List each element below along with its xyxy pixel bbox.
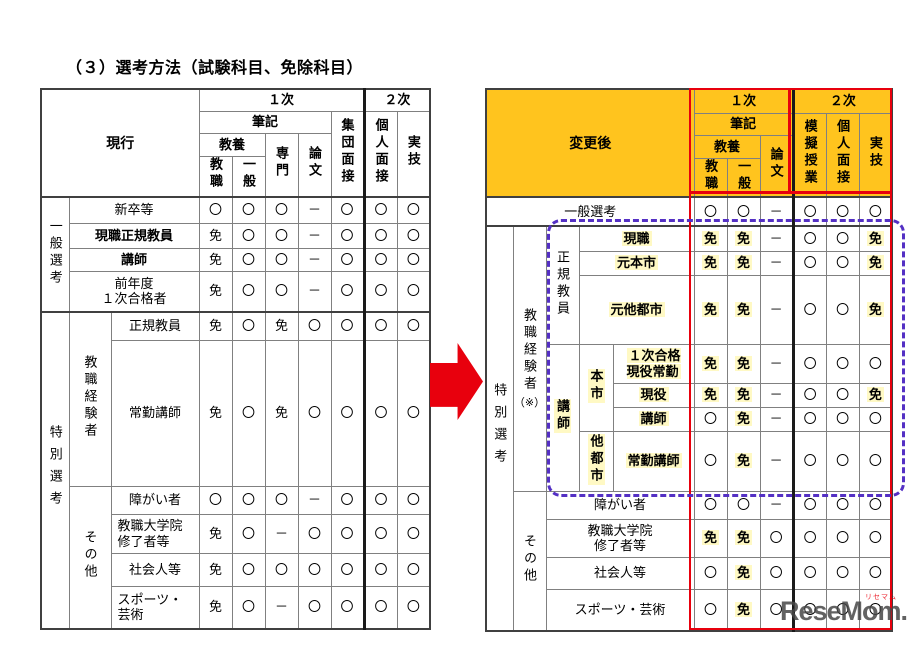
row-label: 現役 bbox=[613, 383, 694, 407]
essay-header: 論文 bbox=[760, 135, 793, 197]
cell: － bbox=[760, 251, 793, 275]
cell: － bbox=[298, 248, 331, 271]
cell: － bbox=[298, 486, 331, 514]
cell: 〇 bbox=[793, 344, 826, 383]
cell: 〇 bbox=[793, 383, 826, 407]
cell: 免 bbox=[694, 226, 727, 251]
current-table: 現行 １次 ２次 筆記 集団面接 個人面接 実技 教養 専門 論文 教職 一般 … bbox=[40, 88, 431, 630]
liberal-header: 教養 bbox=[199, 133, 265, 156]
mock-lesson-header: 模擬授業 bbox=[793, 113, 826, 197]
cell: － bbox=[265, 514, 298, 553]
table-row: 教職大学院 修了者等 免 免 〇 〇 〇 〇 bbox=[486, 519, 892, 557]
cell: 〇 bbox=[364, 553, 397, 586]
cell: 〇 bbox=[793, 491, 826, 519]
cell: － bbox=[760, 197, 793, 226]
cell: 〇 bbox=[232, 514, 265, 553]
row-label-general-selection: 一般選考 bbox=[486, 197, 694, 226]
table-row: 一般選考 〇 〇 － 〇 〇 〇 bbox=[486, 197, 892, 226]
cell: 免 bbox=[727, 383, 760, 407]
cell: 免 bbox=[727, 557, 760, 589]
row-label: スポーツ・ 芸術 bbox=[111, 586, 199, 629]
cell: 〇 bbox=[826, 519, 859, 557]
group-regular-teacher: 正規教員 bbox=[546, 226, 579, 344]
table-row: 前年度 １次合格者 免 〇 〇 － 〇 〇 〇 bbox=[41, 271, 430, 312]
cell: 〇 bbox=[265, 486, 298, 514]
revised-table: 変更後 １次 ２次 筆記 模擬授業 個人面接 実技 教養 論文 教職 一般 一般… bbox=[485, 88, 893, 632]
cell: 〇 bbox=[859, 431, 892, 491]
teaching-header: 教職 bbox=[199, 156, 232, 197]
group-lecturer: 講師 bbox=[546, 344, 579, 491]
cell: 〇 bbox=[265, 197, 298, 223]
cell: 〇 bbox=[826, 344, 859, 383]
cell: 〇 bbox=[364, 586, 397, 629]
row-label: 常勤講師 bbox=[111, 340, 199, 486]
cell: 免 bbox=[727, 251, 760, 275]
cell: 〇 bbox=[397, 553, 430, 586]
cell: 〇 bbox=[331, 486, 364, 514]
group-other-city: 他都市 bbox=[579, 431, 613, 491]
cell: － bbox=[760, 344, 793, 383]
cell: 〇 bbox=[232, 312, 265, 340]
cell: 〇 bbox=[859, 197, 892, 226]
cell: 〇 bbox=[232, 248, 265, 271]
cell: 免 bbox=[859, 251, 892, 275]
cell: 〇 bbox=[397, 312, 430, 340]
cell: 〇 bbox=[397, 248, 430, 271]
cell: 〇 bbox=[760, 519, 793, 557]
table-row: 一般選考 新卒等 〇 〇 〇 － 〇 〇 〇 bbox=[41, 197, 430, 223]
cell: 〇 bbox=[331, 197, 364, 223]
row-label: 社会人等 bbox=[111, 553, 199, 586]
cell: 免 bbox=[859, 275, 892, 344]
row-label: 新卒等 bbox=[69, 197, 199, 223]
change-arrow bbox=[430, 343, 483, 420]
cell: － bbox=[760, 407, 793, 431]
table-row: 講師 免 〇 〇 － 〇 〇 〇 bbox=[41, 248, 430, 271]
cell: 免 bbox=[727, 226, 760, 251]
note-mark: （※） bbox=[514, 397, 545, 410]
cell: 〇 bbox=[826, 226, 859, 251]
general-header: 一般 bbox=[232, 156, 265, 197]
cell: 〇 bbox=[793, 557, 826, 589]
cell: 〇 bbox=[364, 223, 397, 248]
cell: 免 bbox=[727, 275, 760, 344]
cell: 〇 bbox=[694, 491, 727, 519]
general-header: 一般 bbox=[727, 158, 760, 197]
row-label: 元他都市 bbox=[579, 275, 694, 344]
cell: 〇 bbox=[694, 431, 727, 491]
cell: 〇 bbox=[694, 589, 727, 631]
cell: 〇 bbox=[232, 340, 265, 486]
cell: 〇 bbox=[826, 275, 859, 344]
individual-interview-header: 個人面接 bbox=[826, 113, 859, 197]
cell: 〇 bbox=[331, 553, 364, 586]
group-special-selection: 特別選考 bbox=[41, 312, 69, 629]
cell: 〇 bbox=[265, 271, 298, 312]
cell: － bbox=[760, 383, 793, 407]
specialty-header: 専門 bbox=[265, 133, 298, 197]
cell: 免 bbox=[694, 344, 727, 383]
cell: 〇 bbox=[298, 553, 331, 586]
group-general-selection: 一般選考 bbox=[41, 197, 69, 312]
cell: 〇 bbox=[364, 248, 397, 271]
cell: 〇 bbox=[397, 197, 430, 223]
written-header: 筆記 bbox=[694, 113, 793, 135]
watermark-logo: リセマム ReseMom. bbox=[780, 596, 907, 627]
round2-header: ２次 bbox=[364, 89, 430, 111]
row-label: 現職正規教員 bbox=[69, 223, 199, 248]
page-title: （３）選考方法（試験科目、免除科目） bbox=[66, 54, 363, 78]
cell: 〇 bbox=[331, 514, 364, 553]
cell: 〇 bbox=[727, 197, 760, 226]
cell: 免 bbox=[199, 586, 232, 629]
cell: 〇 bbox=[331, 312, 364, 340]
row-label: 現職 bbox=[579, 226, 694, 251]
cell: 〇 bbox=[793, 226, 826, 251]
cell: 〇 bbox=[199, 486, 232, 514]
cell: 〇 bbox=[364, 271, 397, 312]
cell: 〇 bbox=[364, 486, 397, 514]
cell: 〇 bbox=[298, 514, 331, 553]
cell: 〇 bbox=[397, 486, 430, 514]
written-header: 筆記 bbox=[199, 111, 331, 133]
cell: 〇 bbox=[298, 586, 331, 629]
row-label: 講師 bbox=[69, 248, 199, 271]
cell: 〇 bbox=[694, 197, 727, 226]
revised-label: 変更後 bbox=[486, 89, 694, 197]
cell: 〇 bbox=[760, 557, 793, 589]
cell: 免 bbox=[727, 589, 760, 631]
table-row: 社会人等 〇 免 〇 〇 〇 〇 bbox=[486, 557, 892, 589]
table-row: 特別選考 教職経験者 （※） 正規教員 現職 免 免 － 〇 〇 免 bbox=[486, 226, 892, 251]
table-row: 講師 本市 １次合格 現役常勤 免 免 － 〇 〇 〇 bbox=[486, 344, 892, 383]
row-label: 障がい者 bbox=[111, 486, 199, 514]
cell: 免 bbox=[859, 383, 892, 407]
row-label: 講師 bbox=[613, 407, 694, 431]
cell: 〇 bbox=[397, 340, 430, 486]
cell: 免 bbox=[694, 251, 727, 275]
liberal-header: 教養 bbox=[694, 135, 760, 158]
cell: 〇 bbox=[298, 312, 331, 340]
cell: 〇 bbox=[232, 197, 265, 223]
row-label: 教職大学院 修了者等 bbox=[546, 519, 694, 557]
cell: 〇 bbox=[265, 553, 298, 586]
cell: － bbox=[760, 226, 793, 251]
group-teaching-experienced: 教職経験者 （※） bbox=[513, 226, 546, 491]
cell: 免 bbox=[727, 519, 760, 557]
cell: － bbox=[298, 223, 331, 248]
group-interview-header: 集団面接 bbox=[331, 111, 364, 197]
cell: 〇 bbox=[364, 197, 397, 223]
cell: 〇 bbox=[331, 223, 364, 248]
cell: 免 bbox=[265, 340, 298, 486]
page: （３）選考方法（試験科目、免除科目） 現行 １次 ２次 筆記 集団面接 個人面接… bbox=[0, 0, 921, 645]
cell: 免 bbox=[859, 226, 892, 251]
cell: 〇 bbox=[826, 491, 859, 519]
cell: 免 bbox=[727, 407, 760, 431]
cell: 〇 bbox=[793, 251, 826, 275]
cell: 〇 bbox=[793, 197, 826, 226]
cell: 〇 bbox=[859, 407, 892, 431]
table-row: 特別選考 教職経験者 正規教員 免 〇 免 〇 〇 〇 〇 bbox=[41, 312, 430, 340]
cell: － bbox=[760, 275, 793, 344]
cell: 〇 bbox=[364, 312, 397, 340]
table-row: その他 障がい者 〇 〇 〇 － 〇 〇 〇 bbox=[41, 486, 430, 514]
cell: 免 bbox=[199, 312, 232, 340]
watermark-ruby: リセマム bbox=[865, 592, 897, 602]
practical-header: 実技 bbox=[397, 111, 430, 197]
current-label: 現行 bbox=[41, 89, 199, 197]
round1-header: １次 bbox=[694, 89, 793, 113]
group-teaching-experienced: 教職経験者 bbox=[69, 312, 111, 486]
group-other: その他 bbox=[69, 486, 111, 629]
practical-header: 実技 bbox=[859, 113, 892, 197]
cell: 〇 bbox=[826, 383, 859, 407]
round2-header: ２次 bbox=[793, 89, 892, 113]
cell: 〇 bbox=[232, 586, 265, 629]
row-label: 社会人等 bbox=[546, 557, 694, 589]
cell: 〇 bbox=[265, 248, 298, 271]
row-label: 元本市 bbox=[579, 251, 694, 275]
cell: 〇 bbox=[826, 197, 859, 226]
row-label: 常勤講師 bbox=[613, 431, 694, 491]
cell: 免 bbox=[727, 431, 760, 491]
cell: 〇 bbox=[331, 248, 364, 271]
cell: 〇 bbox=[364, 340, 397, 486]
round1-header: １次 bbox=[199, 89, 364, 111]
cell: － bbox=[760, 491, 793, 519]
cell: 〇 bbox=[859, 491, 892, 519]
cell: 〇 bbox=[364, 514, 397, 553]
cell: 免 bbox=[199, 271, 232, 312]
cell: － bbox=[265, 586, 298, 629]
individual-interview-header: 個人面接 bbox=[364, 111, 397, 197]
cell: 〇 bbox=[232, 553, 265, 586]
group-this-city: 本市 bbox=[579, 344, 613, 431]
cell: 免 bbox=[727, 344, 760, 383]
cell: 免 bbox=[694, 275, 727, 344]
cell: 免 bbox=[199, 223, 232, 248]
cell: 免 bbox=[199, 340, 232, 486]
cell: 〇 bbox=[793, 407, 826, 431]
cell: 〇 bbox=[826, 557, 859, 589]
essay-header: 論文 bbox=[298, 133, 331, 197]
cell: 〇 bbox=[793, 275, 826, 344]
cell: 免 bbox=[199, 553, 232, 586]
cell: 免 bbox=[694, 519, 727, 557]
cell: 〇 bbox=[793, 431, 826, 491]
cell: 〇 bbox=[232, 486, 265, 514]
cell: － bbox=[298, 271, 331, 312]
cell: 〇 bbox=[859, 519, 892, 557]
cell: 〇 bbox=[826, 407, 859, 431]
row-label: 障がい者 bbox=[546, 491, 694, 519]
row-label: 正規教員 bbox=[111, 312, 199, 340]
cell: 〇 bbox=[859, 557, 892, 589]
cell: 〇 bbox=[397, 514, 430, 553]
cell: 免 bbox=[199, 248, 232, 271]
cell: 〇 bbox=[826, 251, 859, 275]
cell: 〇 bbox=[727, 491, 760, 519]
cell: 〇 bbox=[232, 223, 265, 248]
cell: 〇 bbox=[265, 223, 298, 248]
table-row: 現職正規教員 免 〇 〇 － 〇 〇 〇 bbox=[41, 223, 430, 248]
cell: － bbox=[760, 431, 793, 491]
cell: 〇 bbox=[694, 557, 727, 589]
cell: 〇 bbox=[232, 271, 265, 312]
cell: 〇 bbox=[331, 340, 364, 486]
cell: 〇 bbox=[298, 340, 331, 486]
cell: 〇 bbox=[694, 407, 727, 431]
cell: － bbox=[298, 197, 331, 223]
table-row: その他 障がい者 〇 〇 － 〇 〇 〇 bbox=[486, 491, 892, 519]
group-special-selection: 特別選考 bbox=[486, 226, 513, 631]
row-label: 前年度 １次合格者 bbox=[69, 271, 199, 312]
group-other: その他 bbox=[513, 491, 546, 631]
row-label: １次合格 現役常勤 bbox=[613, 344, 694, 383]
row-label: 教職大学院 修了者等 bbox=[111, 514, 199, 553]
cell: 免 bbox=[694, 383, 727, 407]
cell: 〇 bbox=[859, 344, 892, 383]
cell: 免 bbox=[199, 514, 232, 553]
cell: 〇 bbox=[397, 271, 430, 312]
cell: 〇 bbox=[826, 431, 859, 491]
cell: 〇 bbox=[331, 586, 364, 629]
teaching-header: 教職 bbox=[694, 158, 727, 197]
cell: 〇 bbox=[331, 271, 364, 312]
cell: 免 bbox=[265, 312, 298, 340]
cell: 〇 bbox=[793, 519, 826, 557]
cell: 〇 bbox=[397, 223, 430, 248]
cell: 〇 bbox=[397, 586, 430, 629]
row-label: スポーツ・芸術 bbox=[546, 589, 694, 631]
cell: 〇 bbox=[199, 197, 232, 223]
